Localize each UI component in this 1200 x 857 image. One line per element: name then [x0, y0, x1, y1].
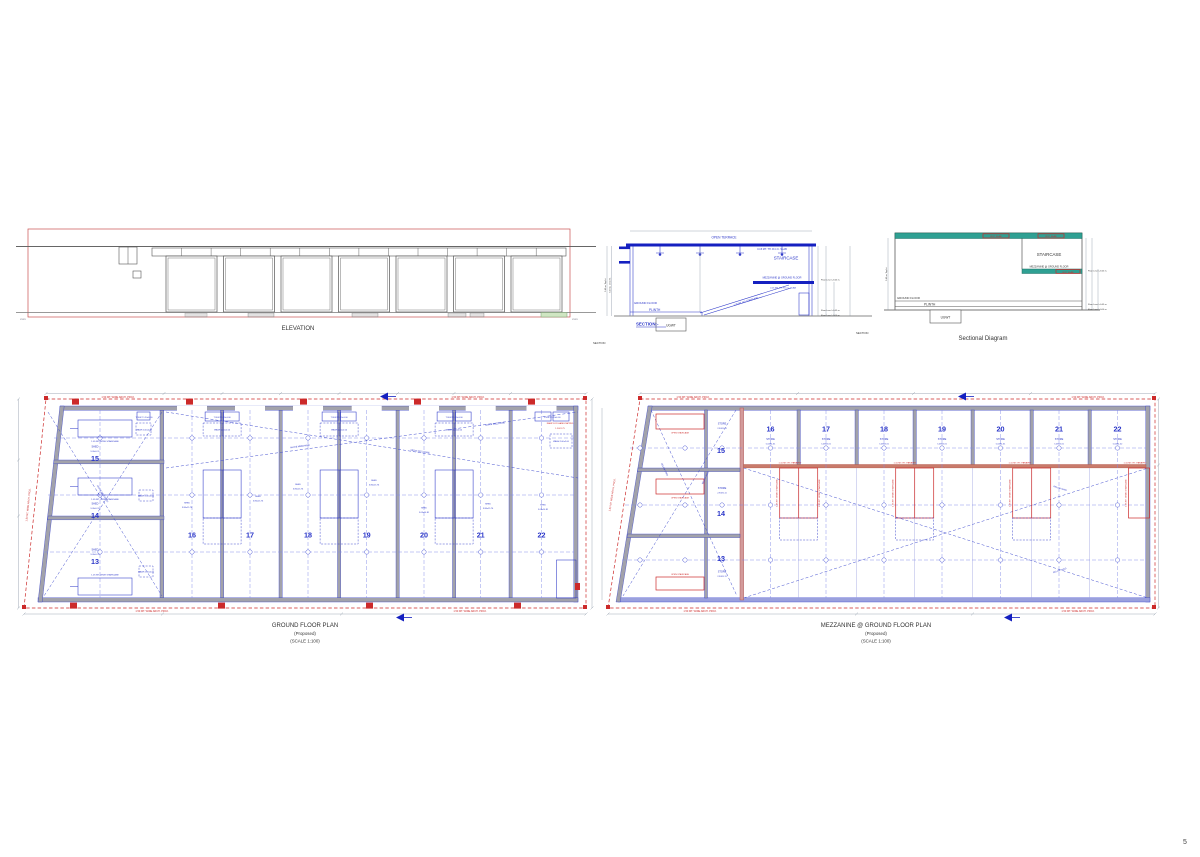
- mezz-open-stair-13: OPEN STAIRCASE: [671, 573, 690, 576]
- mezz-subtitle: (Proposed): [865, 631, 887, 636]
- section-drawing: OPEN TERRACE 0.15 MT. TH. R.C.C. SLAB ST…: [585, 220, 877, 352]
- mezz-unit21-type: STORE: [1055, 438, 1064, 441]
- gfp-unit21-dims: 3.86x15.76: [483, 508, 494, 510]
- mezz-arch-proj-bottom-left: 1.50 MT. WIDE ARCH. PROJ.: [683, 610, 717, 613]
- staircase-label: STAIRCASE: [1037, 252, 1062, 257]
- mezz-stair-note-1: 1.05 MT. WIDE STAIRCASE: [776, 479, 779, 507]
- gfp-toilet-wash-blocks: [136, 412, 572, 577]
- elevation-left-tick: XXXX: [20, 319, 26, 321]
- gfp-toilet-5: TOILET 1.20x1.00: [544, 417, 562, 419]
- gfp-diagonals: [44, 412, 578, 596]
- height-clear: 5.20 m. Clear ht.: [609, 277, 612, 293]
- gfp-arch-proj-top-right: 1.50 MT. WIDE ARCH. PROJ.: [451, 396, 485, 399]
- gfp-arch-proj-left: 1.50 MT. WIDE ARCH. PROJ.: [25, 488, 31, 522]
- gfp-unit13-dims: 9.09x5.11: [91, 554, 101, 556]
- mezz-unit15-dims: 2.90X5.11: [717, 428, 727, 430]
- open-terrace-label: OPEN TERRACE: [711, 236, 736, 240]
- elevation-title: ELEVATION: [282, 326, 315, 332]
- mezz-unit14-type: STORE: [718, 487, 727, 490]
- gfp-unit20-dims: 5.03x14.81: [419, 512, 430, 514]
- level-plinth: Floor Level +0.45 m.: [821, 309, 840, 312]
- gfp-unit18-type: SHED: [295, 484, 301, 486]
- level-ground: Floor Level +0.00 m.: [821, 314, 840, 317]
- gfp-unit16-type: SHED: [184, 503, 190, 505]
- mezzanine-plan: 1.50 MT. WIDE ARCH. PROJ. 1.50 MT. WIDE …: [596, 385, 1170, 660]
- ugwt-label: UGWT: [666, 324, 676, 328]
- mezz-unit19-type: STORE: [938, 438, 947, 441]
- gfp-toilet-1: TOILET 1.20x1.00: [214, 417, 232, 419]
- gfp-unit20-type: SHED: [421, 508, 427, 510]
- gfp-arch-proj-bottom-left: 1.50 MT. WIDE ARCH. PROJ.: [135, 610, 169, 613]
- mezz-unit17-dims: 5.03X4.31: [821, 443, 831, 445]
- gfp-wash-6: WASH 2.00x2.00: [138, 495, 155, 498]
- gfp-unit16-dims: 3.86x15.76: [182, 507, 193, 509]
- mezz-scale: (SCALE 1:100): [861, 639, 891, 644]
- ramp-strip: [541, 313, 567, 318]
- drawing-sheet: XXXX XXXX ELEVATION OPEN TERRACE 0.15 MT…: [0, 0, 1200, 857]
- mezz-title: MEZZANINE @ GROUND FLOOR PLAN: [821, 623, 931, 629]
- gfp-unit19-type: SHED: [371, 480, 377, 482]
- mezz-parapet-2: 1.10 MT. HT. PARAPET: [894, 461, 918, 464]
- mezz-unit15-num: 15: [717, 446, 725, 455]
- elevation-drawing: XXXX XXXX ELEVATION: [0, 215, 620, 340]
- gfp-wash-5: WASH 2.00x2.00: [553, 440, 570, 443]
- height-total: 5.65 m. Top ht.: [604, 278, 607, 292]
- mezzanine-label: MEZZANINE @ GROUND FLOOR: [1030, 266, 1069, 269]
- mezzanine-slab: [753, 281, 814, 284]
- gfp-unit13-type: SHED: [92, 549, 99, 552]
- mezz-unit14-dims: 2.90X5.11: [717, 492, 727, 494]
- gfp-wash-1: WASH 2.00x2.00: [214, 429, 231, 432]
- mezz-unit16-num: 16: [767, 425, 775, 434]
- gfp-unit14-num: 14: [91, 511, 99, 520]
- section-footnote: SECTION: [593, 341, 605, 345]
- gfp-arch-proj-bottom-right: 1.50 MT. WIDE ARCH. PROJ.: [453, 610, 487, 613]
- section-door: [799, 293, 809, 315]
- mezz-unit18-num: 18: [880, 425, 888, 434]
- mezz-unit20-dims: 5.03X4.31: [996, 443, 1006, 445]
- gfp-unit16-num: 16: [188, 531, 196, 540]
- mezz-unit20-num: 20: [997, 425, 1005, 434]
- mezz-unit13-num: 13: [717, 554, 725, 563]
- mezz-arch-proj-top-left: 1.50 MT. WIDE ARCH. PROJ.: [676, 396, 710, 399]
- meter-box: [133, 271, 141, 278]
- level-ground: Floor Level +0.00 m.: [1088, 308, 1107, 311]
- mezz-unit22-dims: 5.03X4.52: [1113, 443, 1123, 445]
- level-plinth: Floor Level +0.45 m.: [1088, 303, 1107, 306]
- plinth-label: PLINTH: [924, 302, 936, 306]
- parapet-wall: [744, 465, 1146, 468]
- gfp-unit22-dims: 5.03x14.81: [538, 509, 549, 511]
- slab-tag-2: RCC SLAB: [1046, 235, 1057, 238]
- gfp-above-mezz-3: ABOVE MEZZANINE: [410, 449, 431, 455]
- gfp-unit14-type: SHED: [92, 503, 99, 506]
- gfp-unit18-num: 18: [304, 531, 312, 540]
- sectional-title: Sectional Diagram: [958, 336, 1007, 342]
- mezz-arch-proj-top-right: 1.50 MT. WIDE ARCH. PROJ.: [1071, 396, 1105, 399]
- slab-tag-1: RCC SLAB: [991, 235, 1002, 238]
- gfp-above-mezz-1: ABOVE MEZZANINE: [290, 444, 311, 450]
- gfp-unit15-num: 15: [91, 454, 99, 463]
- mezz-stair-note-3: 1.05 MT. WIDE STAIRCASE: [892, 479, 895, 507]
- elevation-plinth: [16, 313, 596, 318]
- gfp-unit19-dims: 3.86x15.76: [369, 484, 380, 486]
- ground-floor-label: GROUND FLOOR: [634, 301, 657, 305]
- mezz-unit14-num: 14: [717, 509, 725, 518]
- gfp-arch-proj-top-left: 1.50 MT. WIDE ARCH. PROJ.: [101, 396, 135, 399]
- ugwt-label: UGWT: [941, 316, 951, 320]
- mezz-unit17-num: 17: [822, 425, 830, 434]
- elevation-right-tick: XXXX: [572, 319, 578, 321]
- gfp-stair-note-14: 1.05 MT. WIDE STAIRCASE: [91, 498, 119, 501]
- gfp-scale: (SCALE 1:100): [290, 639, 320, 644]
- gfp-toilet-4: TOILET 1.20x1.00: [136, 417, 154, 419]
- mezz-unit16-type: STORE: [766, 438, 775, 441]
- mezz-unit16-dims: 5.03X4.31: [766, 443, 776, 445]
- page-number: 5: [1183, 839, 1187, 846]
- gfp-wash-2: WASH 2.00x2.00: [331, 429, 348, 432]
- gfp-pair-staircases: [203, 470, 576, 598]
- gfp-unit17-num: 17: [246, 531, 254, 540]
- gfp-ramp-1: RAMP FOR HANDICAPPED: [547, 422, 574, 425]
- gfp-unit21-num: 21: [477, 531, 485, 540]
- sectional-diagram-drawing: RCC SLAB RCC SLAB RCC SLAB STAIRCASE MEZ…: [853, 218, 1158, 353]
- gfp-left-staircases: [70, 420, 132, 595]
- staircase-flight: [700, 285, 791, 315]
- gfp-unit19-num: 19: [363, 531, 371, 540]
- gfp-stair-note-13: 1.05 MT. WIDE STAIRCASE: [91, 574, 119, 577]
- mezz-unit22-num: 22: [1114, 425, 1122, 434]
- gfp-unit22-type: SHED: [540, 505, 546, 507]
- mezz-unit21-num: 21: [1055, 425, 1063, 434]
- height-total: 5.65 m. Top ht.: [885, 267, 888, 281]
- mezz-arch-proj-left: 1.50 MT. WIDE ARCH. PROJ.: [608, 478, 616, 512]
- gfp-unit17-dims: 3.86x15.76: [253, 500, 264, 502]
- elevation-shutters: [166, 256, 562, 312]
- gfp-toilet-3: TOILET 1.20x1.00: [446, 417, 464, 419]
- mezz-unit19-dims: 5.03X4.31: [937, 443, 947, 445]
- ground-floor-label: GROUND FLOOR: [897, 296, 920, 300]
- rcc-slab-label-mezz: 0.15 MT. TH. R.C.C. SLAB: [770, 287, 796, 290]
- gfp-unit15-dims: 9.09x5.11: [91, 451, 101, 453]
- gfp-unit20-num: 20: [420, 531, 428, 540]
- mezz-unit17-type: STORE: [822, 438, 831, 441]
- unit22-staircase: [557, 560, 577, 598]
- mezz-parapet-3: 1.10 MT. HT. PARAPET: [1009, 461, 1033, 464]
- mezz-stair-note-2: 1.05 MT. WIDE STAIRCASE: [818, 479, 821, 507]
- rcc-slab-label-top: 0.15 MT. TH. R.C.C. SLAB: [757, 248, 787, 251]
- level-mezz: Floor Level +3.65 m.: [1088, 270, 1107, 273]
- mezz-unit18-dims: 5.03X4.31: [879, 443, 889, 445]
- mezz-stair-note-5: 1.05 MT. WIDE STAIRCASE: [1125, 479, 1128, 507]
- gfp-unit14-dims: 9.09x5.11: [91, 508, 101, 510]
- mezz-open-stair-15: OPEN STAIRCASE: [671, 432, 690, 435]
- gfp-unit22-num: 22: [538, 531, 546, 540]
- gfp-unit21-type: SHED: [485, 504, 491, 506]
- gfp-dimension-lines: [17, 392, 594, 616]
- mezz-unit19-num: 19: [938, 425, 946, 434]
- gfp-title: GROUND FLOOR PLAN: [272, 623, 338, 629]
- section-heading: SECTION:-: [636, 322, 659, 327]
- slab-tag-3: RCC SLAB: [1063, 271, 1074, 274]
- sectional-footnote: SECTION: [856, 331, 868, 335]
- mezz-unit21-dims: 5.03X4.31: [1054, 443, 1064, 445]
- mezz-unit22-type: STORE: [1113, 438, 1122, 441]
- sectional-structure: [884, 233, 1100, 323]
- gfp-wash-3: WASH 2.00x2.00: [446, 429, 463, 432]
- mezz-parapet-1: 1.10 MT. HT. PARAPET: [779, 461, 803, 464]
- mezz-unit15-type: STORE: [718, 423, 727, 426]
- mezz-unit13-type: STORE: [718, 571, 727, 574]
- plinth-label: PLINTH: [649, 308, 661, 312]
- ground-floor-plan: 1.50 MT. WIDE ARCH. PROJ. 1.50 MT. WIDE …: [10, 385, 610, 660]
- gfp-wash-4: WASH 2.00x2.00: [136, 429, 153, 432]
- mezz-unit13-dims: 2.90X5.11: [717, 576, 727, 578]
- gfp-subtitle: (Proposed): [294, 631, 316, 636]
- mezz-unit20-type: STORE: [996, 438, 1005, 441]
- gfp-ramp-2: 1.50X1.75: [555, 428, 565, 430]
- gfp-toilet-2: TOILET 1.20x1.00: [331, 417, 349, 419]
- mezz-open-stair-14: OPEN STAIRCASE: [671, 497, 690, 500]
- mezzanine-label: MEZZANINE @ GROUND FLOOR: [763, 277, 802, 280]
- gfp-wash-7: WASH 2.00x2.00: [138, 571, 155, 574]
- gfp-unit13-num: 13: [91, 557, 99, 566]
- staircase-label: STAIRCASE: [774, 256, 799, 261]
- mezz-below-shed-2: BELOW SHED: [1053, 568, 1067, 574]
- mezz-below-shed-1: BELOW SHED: [1053, 486, 1067, 492]
- gfp-centerlines: [44, 410, 574, 598]
- mezz-stair-note-4: 1.05 MT. WIDE STAIRCASE: [1009, 479, 1012, 507]
- gfp-unit17-type: SHED: [255, 496, 261, 498]
- level-mezz: Floor Level +3.65 m.: [821, 279, 840, 282]
- gfp-unit15-type: SHED: [92, 446, 99, 449]
- mezz-arch-proj-bottom-right: 1.50 MT. WIDE ARCH. PROJ.: [1061, 610, 1095, 613]
- gfp-above-mezz-2: ABOVE MEZZANINE: [485, 421, 506, 427]
- gfp-stair-note-15: 1.05 MT. WIDE STAIRCASE: [91, 440, 119, 443]
- terrace-slab: [626, 244, 816, 247]
- mezz-central-staircases: [780, 468, 1150, 540]
- mezz-parapet-4: 1.10 MT. HT. PARAPET: [1124, 461, 1148, 464]
- gfp-unit18-dims: 3.86x15.76: [293, 488, 304, 490]
- mezz-unit18-type: STORE: [880, 438, 889, 441]
